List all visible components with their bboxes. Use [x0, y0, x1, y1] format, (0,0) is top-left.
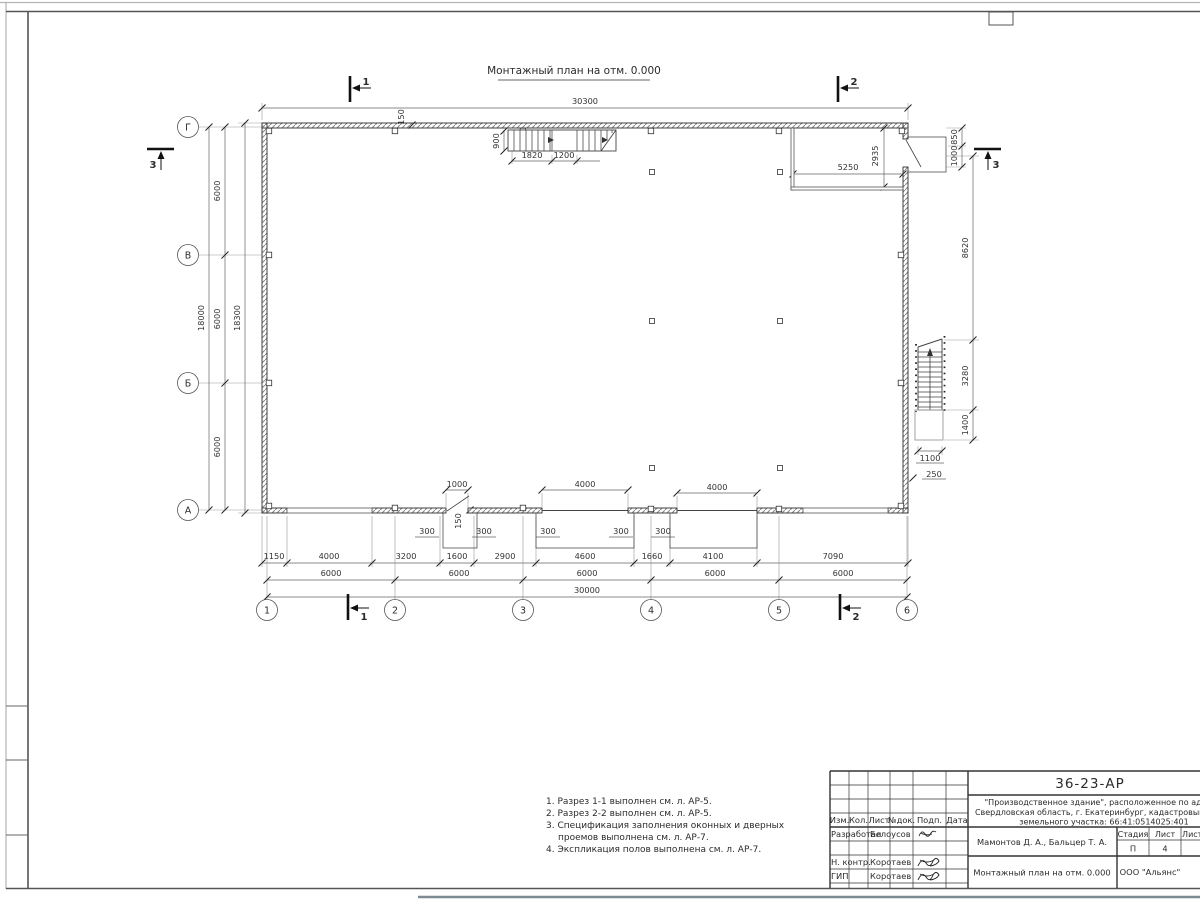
section-1-bottom: 1 — [361, 612, 368, 623]
dim-chain-4000: 4000 — [319, 551, 340, 561]
dim-gate2-width: 4000 — [707, 482, 728, 492]
dim-left-h2: 6000 — [212, 309, 222, 330]
building-walls — [262, 123, 946, 548]
room-partition-vertical — [791, 128, 794, 190]
tb-col-ndok: №док. — [888, 815, 915, 825]
dim-room-depth: 2935 — [870, 146, 880, 167]
frame-corner-box — [989, 12, 1013, 25]
section-3-left: 3 — [150, 160, 157, 171]
tb-col-data: Дата — [946, 815, 967, 825]
tb-doc-number: 36-23-АР — [1055, 776, 1124, 792]
dim-porch-1000: 1000 — [949, 146, 959, 167]
axis-row-b: Б — [185, 379, 192, 390]
dim-stair-run2: 1200 — [554, 150, 575, 160]
dim-chain-7090: 7090 — [823, 551, 844, 561]
tb-name-developer: Белоусов — [870, 829, 911, 839]
tb-role-ncontrol: Н. контр. — [831, 857, 871, 867]
tb-company: ООО "Альянс" — [1120, 867, 1181, 877]
section-2-top: 2 — [851, 77, 858, 88]
tb-drawing-title: Монтажный план на отм. 0.000 — [973, 868, 1110, 878]
stair-landing — [915, 410, 943, 440]
porch-door-leaf — [906, 140, 921, 167]
section-1-top: 1 — [363, 77, 370, 88]
tb-role-gip: ГИП — [831, 871, 849, 881]
tb-col-list: Лист — [868, 815, 889, 825]
window-band-right — [803, 508, 888, 513]
dim-right-8620: 8620 — [960, 238, 970, 259]
dim-jamb: 300 — [419, 526, 435, 536]
dim-stair-width: 900 — [491, 133, 501, 149]
dim-bottom-total: 30000 — [574, 585, 600, 595]
dim-span-6000: 6000 — [449, 568, 470, 578]
tb-col-izm: Изм. — [830, 815, 850, 825]
dim-right-3280: 3280 — [960, 366, 970, 387]
signature — [918, 859, 939, 867]
plan-drawing: Монтажный план на отм. 0.000 — [0, 0, 1200, 900]
dim-jamb: 300 — [613, 526, 629, 536]
axis-row-a: А — [185, 506, 192, 517]
section-3-right: 3 — [993, 160, 1000, 171]
notes-block: 1. Разрез 1-1 выполнен см. л. АР-5. 2. Р… — [546, 797, 785, 855]
tb-sheets-label: Листов — [1182, 830, 1200, 839]
dim-jamb: 300 — [655, 526, 671, 536]
drawing-sheet: Монтажный план на отм. 0.000 — [0, 0, 1200, 900]
dim-chain-4100: 4100 — [703, 551, 724, 561]
signature — [918, 873, 939, 881]
tb-authors: Мамонтов Д. А., Бальцер Т. А. — [977, 837, 1107, 847]
dim-wall-thk-bottom: 150 — [453, 513, 463, 529]
tb-col-kol: Кол. — [849, 815, 868, 825]
axis-col-1: 1 — [264, 606, 270, 617]
dim-jamb: 300 — [476, 526, 492, 536]
extension-lines — [199, 103, 979, 600]
tb-name-gip: Коротаев — [870, 871, 911, 881]
dim-chain-1600: 1600 — [447, 551, 468, 561]
dim-span-6000: 6000 — [577, 568, 598, 578]
dim-right-1400: 1400 — [960, 415, 970, 436]
axis-col-3: 3 — [520, 606, 526, 617]
tb-sheet-value: 4 — [1162, 844, 1167, 854]
exterior-stair — [915, 336, 945, 440]
tb-name-ncontrol: Коротаев — [870, 857, 911, 867]
tb-project-line3: земельного участка: 66:41:0514025:401 — [1019, 818, 1188, 827]
dimension-lines — [206, 105, 977, 601]
note-line: 3. Спецификация заполнения оконных и две… — [546, 821, 785, 831]
plan-title: Монтажный план на отм. 0.000 — [487, 65, 661, 77]
wall-pilasters — [266, 128, 905, 512]
dim-wall-thk-top: 150 — [396, 109, 406, 125]
dim-jamb: 300 — [540, 526, 556, 536]
dim-left-h1: 6000 — [212, 181, 222, 202]
dim-stair-run1: 1820 — [522, 150, 543, 160]
tb-project-line2: Свердловская область, г. Екатеринбург, к… — [975, 808, 1200, 817]
signature — [919, 831, 936, 836]
axis-row-g: Г — [185, 123, 191, 134]
note-line: 1. Разрез 1-1 выполнен см. л. АР-5. — [546, 797, 712, 807]
axis-col-4: 4 — [648, 606, 654, 617]
dim-chain-2900: 2900 — [495, 551, 516, 561]
window-band-left — [287, 508, 372, 513]
dim-span-6000: 6000 — [833, 568, 854, 578]
title-block: Изм. Кол. Лист №док. Подп. Дата Разработ… — [830, 771, 1200, 888]
dim-left-total: 18000 — [196, 305, 206, 331]
dim-chain-4600: 4600 — [575, 551, 596, 561]
axis-row-v: В — [185, 251, 192, 262]
dim-room-width: 5250 — [838, 162, 859, 172]
note-line: проемов выполнена см. л. АР-7. — [558, 833, 709, 843]
axis-col-6: 6 — [904, 606, 910, 617]
dim-ext-stair-width: 1100 — [920, 453, 941, 463]
interior-stair — [508, 130, 616, 151]
tb-stage-label: Стадия — [1118, 830, 1149, 839]
section-2-bottom: 2 — [853, 612, 860, 623]
room-partition-horizontal — [791, 187, 903, 190]
dim-ext-stair-offset: 250 — [926, 469, 942, 479]
axis-col-2: 2 — [392, 606, 398, 617]
dim-span-6000: 6000 — [321, 568, 342, 578]
dim-left-h3: 6000 — [212, 437, 222, 458]
dim-porch-850: 850 — [949, 129, 959, 145]
axis-bubbles: Г В Б А 1 2 3 4 5 6 — [178, 117, 918, 621]
dim-span-6000: 6000 — [705, 568, 726, 578]
tb-stage-value: П — [1130, 844, 1136, 854]
axis-col-5: 5 — [776, 606, 782, 617]
tb-sheet-label: Лист — [1155, 830, 1176, 839]
tb-project-line1: "Производственное здание", расположенное… — [985, 798, 1200, 807]
dim-top-total: 30300 — [572, 96, 598, 106]
dim-gate1-width: 4000 — [575, 479, 596, 489]
dim-chain-1150: 1150 — [264, 551, 285, 561]
dim-chain-3200: 3200 — [396, 551, 417, 561]
door-leaf — [447, 496, 469, 511]
note-line: 4. Экспликация полов выполнена см. л. АР… — [546, 845, 761, 855]
tb-col-podp: Подп. — [917, 815, 942, 825]
dim-chain-1660: 1660 — [642, 551, 663, 561]
interior-columns — [650, 170, 783, 471]
dim-left-outer: 18300 — [232, 305, 242, 331]
dimension-labels: 30300 18000 6000 6000 6000 18300 850 100… — [196, 96, 970, 595]
note-line: 2. Разрез 2-2 выполнен см. л. АР-5. — [546, 809, 712, 819]
dim-door-width: 1000 — [447, 479, 468, 489]
